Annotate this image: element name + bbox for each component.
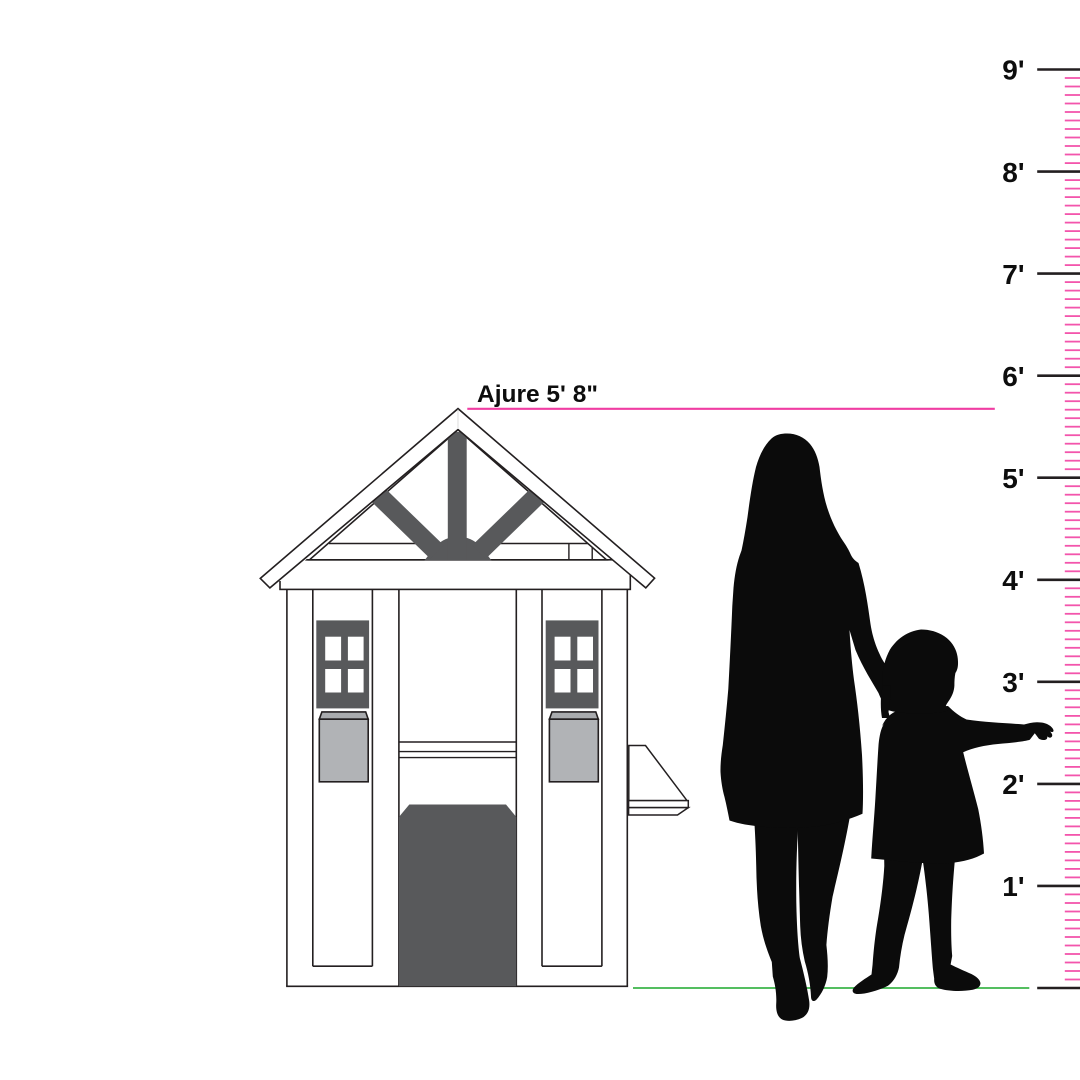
svg-text:2': 2' [1002,769,1024,800]
svg-text:9': 9' [1002,55,1024,86]
svg-text:7': 7' [1002,259,1024,290]
svg-text:8': 8' [1002,157,1024,188]
svg-text:6': 6' [1002,361,1024,392]
svg-text:4': 4' [1002,565,1024,596]
svg-text:Ajure 5' 8": Ajure 5' 8" [477,381,598,408]
svg-text:5': 5' [1002,463,1024,494]
svg-text:1': 1' [1002,871,1024,902]
svg-text:3': 3' [1002,667,1024,698]
